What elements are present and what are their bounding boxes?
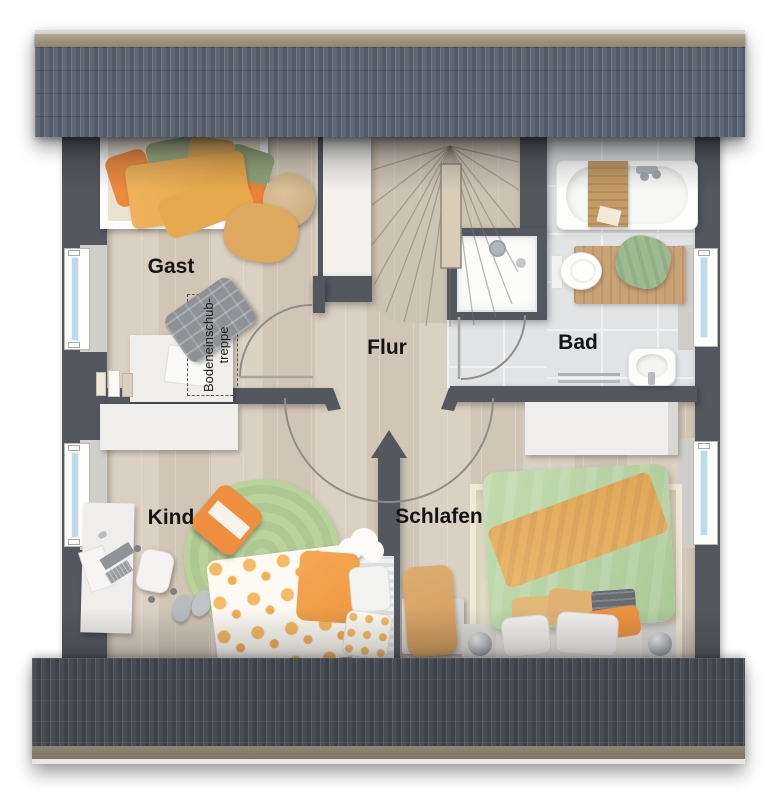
window-kind-latch — [68, 445, 80, 451]
kind-bed-pillow-dotted — [341, 609, 393, 661]
kind-chair-wheel-3 — [134, 545, 141, 552]
attic-ladder-label-line2: treppe — [217, 298, 232, 392]
window-schlafen-latch — [698, 443, 710, 449]
gast-book-3 — [122, 373, 133, 397]
bathtub-handle-2 — [652, 170, 661, 179]
door-arc-kind — [285, 398, 389, 502]
shower-head — [489, 240, 506, 257]
room-label-gast: Gast — [131, 254, 211, 280]
roof-top — [35, 30, 745, 137]
schlafen-pillow-white-2 — [555, 611, 620, 657]
room-label-kind: Kind — [131, 505, 211, 531]
window-gast-latch — [68, 250, 80, 256]
roof-bottom — [32, 658, 745, 764]
door-arc-bad — [461, 315, 525, 379]
bathtub-handle-1 — [640, 172, 649, 181]
window-bad-latch — [698, 250, 710, 256]
toilet-seat-ring — [570, 259, 596, 283]
attic-ladder-label-line1: Bodeneinschub- — [202, 298, 217, 392]
room-label-flur: Flur — [347, 335, 427, 361]
window-bad-glass — [700, 257, 708, 338]
kind-chair-wheel-1 — [148, 596, 155, 603]
gast-book-1 — [96, 372, 106, 396]
roof-top-ridge — [35, 34, 745, 47]
schlafen-wardrobe-side — [668, 402, 678, 455]
room-label-schlafen: Schlafen — [394, 504, 484, 530]
kind-chair-wheel-2 — [170, 588, 177, 595]
room-label-bad: Bad — [538, 330, 618, 356]
window-gast-latch2 — [68, 342, 80, 348]
roof-top-tiles — [35, 47, 745, 137]
wall-notch-schlafen-door — [441, 388, 462, 411]
attic-ladder-annotation: Bodeneinschub- treppe — [190, 292, 244, 398]
cloud-lobe-3 — [362, 540, 384, 562]
bath-basin-tap — [648, 372, 655, 385]
stair-spine-wall — [441, 164, 461, 268]
towel-rail-bar-2 — [558, 380, 620, 383]
window-kind-glass — [71, 452, 79, 538]
window-schlafen-glass — [700, 450, 708, 536]
schlafen-bench-blanket — [402, 564, 458, 657]
kind-bed-pillow-white — [348, 564, 392, 613]
window-kind-latch2 — [68, 539, 80, 545]
wall-notch-kind-door — [320, 388, 341, 411]
window-gast-glass — [71, 257, 79, 341]
floor-plan: Bodeneinschub- treppe — [0, 0, 775, 796]
towel-rail-bar-1 — [558, 373, 620, 376]
roof-bottom-gutter-line — [32, 759, 745, 764]
schlafen-lamp-sphere-left — [468, 632, 492, 656]
schlafen-pillow-white-1 — [500, 614, 552, 659]
roof-bottom-tiles — [32, 658, 745, 746]
schlafen-wardrobe — [525, 402, 678, 455]
wall-notches — [320, 388, 462, 458]
kind-wardrobe — [100, 404, 238, 450]
shower-drain — [516, 258, 526, 268]
schlafen-lamp-sphere-right — [648, 632, 672, 656]
wall-chevron-center — [371, 430, 407, 458]
roof-bottom-eave — [32, 746, 745, 759]
gast-book-2 — [108, 370, 120, 397]
